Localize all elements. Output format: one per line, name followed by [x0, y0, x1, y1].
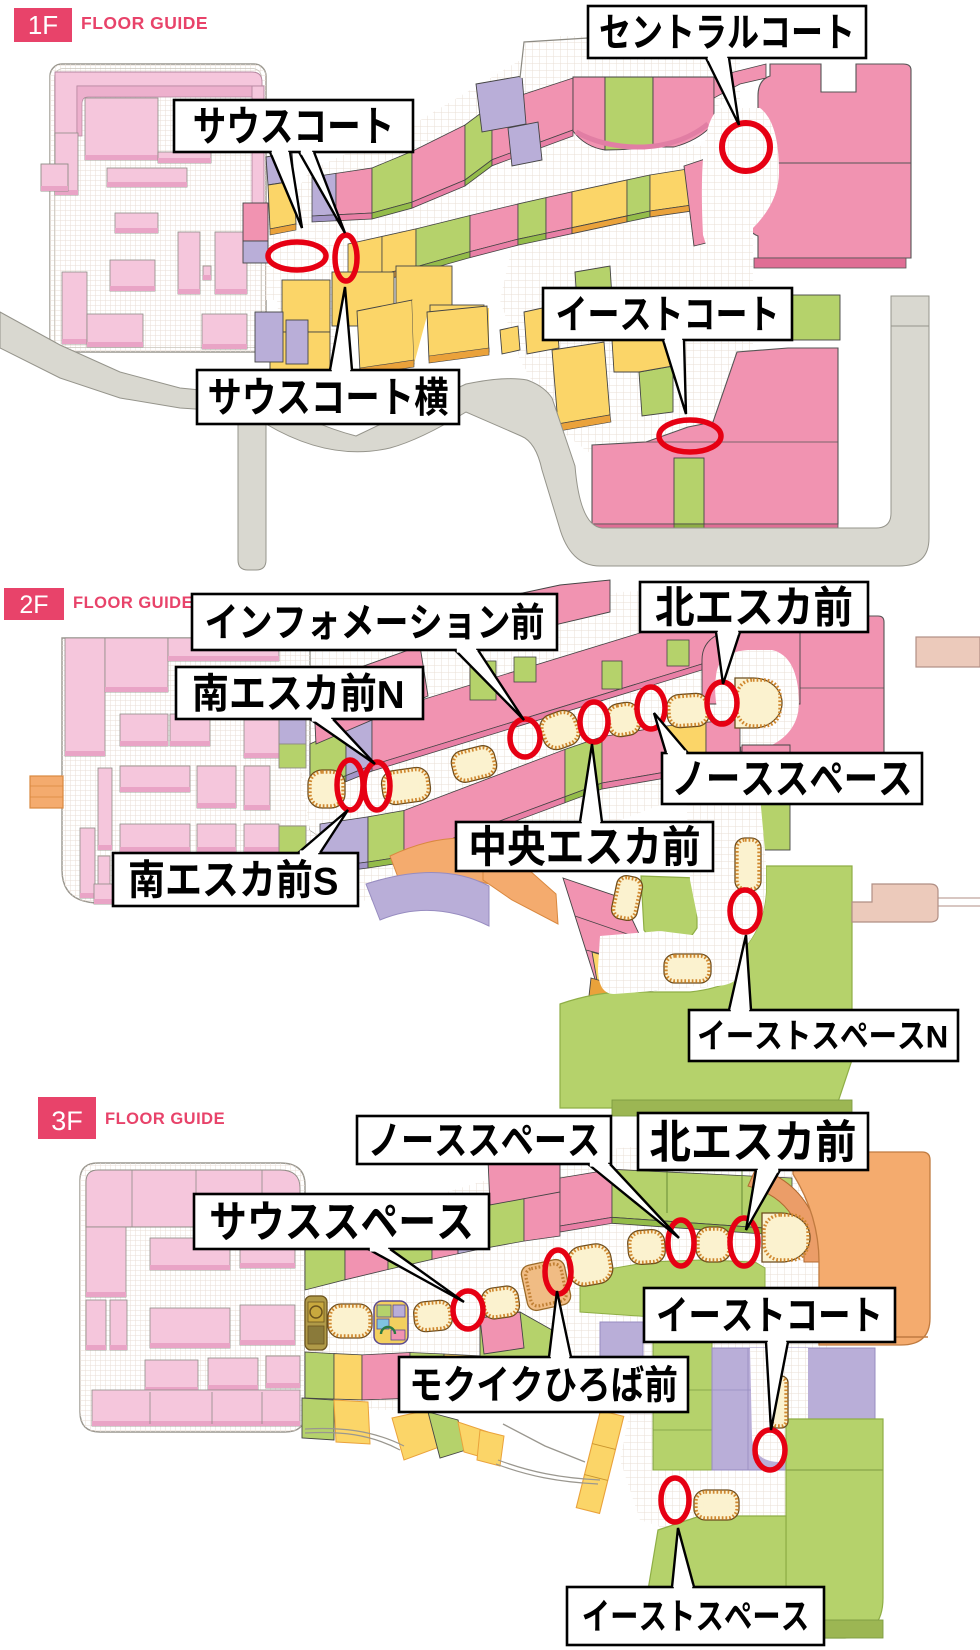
svg-text:N: N [926, 1020, 949, 1055]
svg-text:1F: 1F [28, 10, 58, 40]
svg-text:S: S [313, 861, 339, 904]
svg-text:2F: 2F [19, 591, 48, 619]
svg-text:FLOOR GUIDE: FLOOR GUIDE [81, 13, 208, 33]
svg-text:FLOOR GUIDE: FLOOR GUIDE [73, 594, 193, 612]
svg-text:FLOOR GUIDE: FLOOR GUIDE [105, 1110, 225, 1128]
svg-text:N: N [377, 674, 405, 717]
svg-text:3F: 3F [51, 1106, 83, 1136]
